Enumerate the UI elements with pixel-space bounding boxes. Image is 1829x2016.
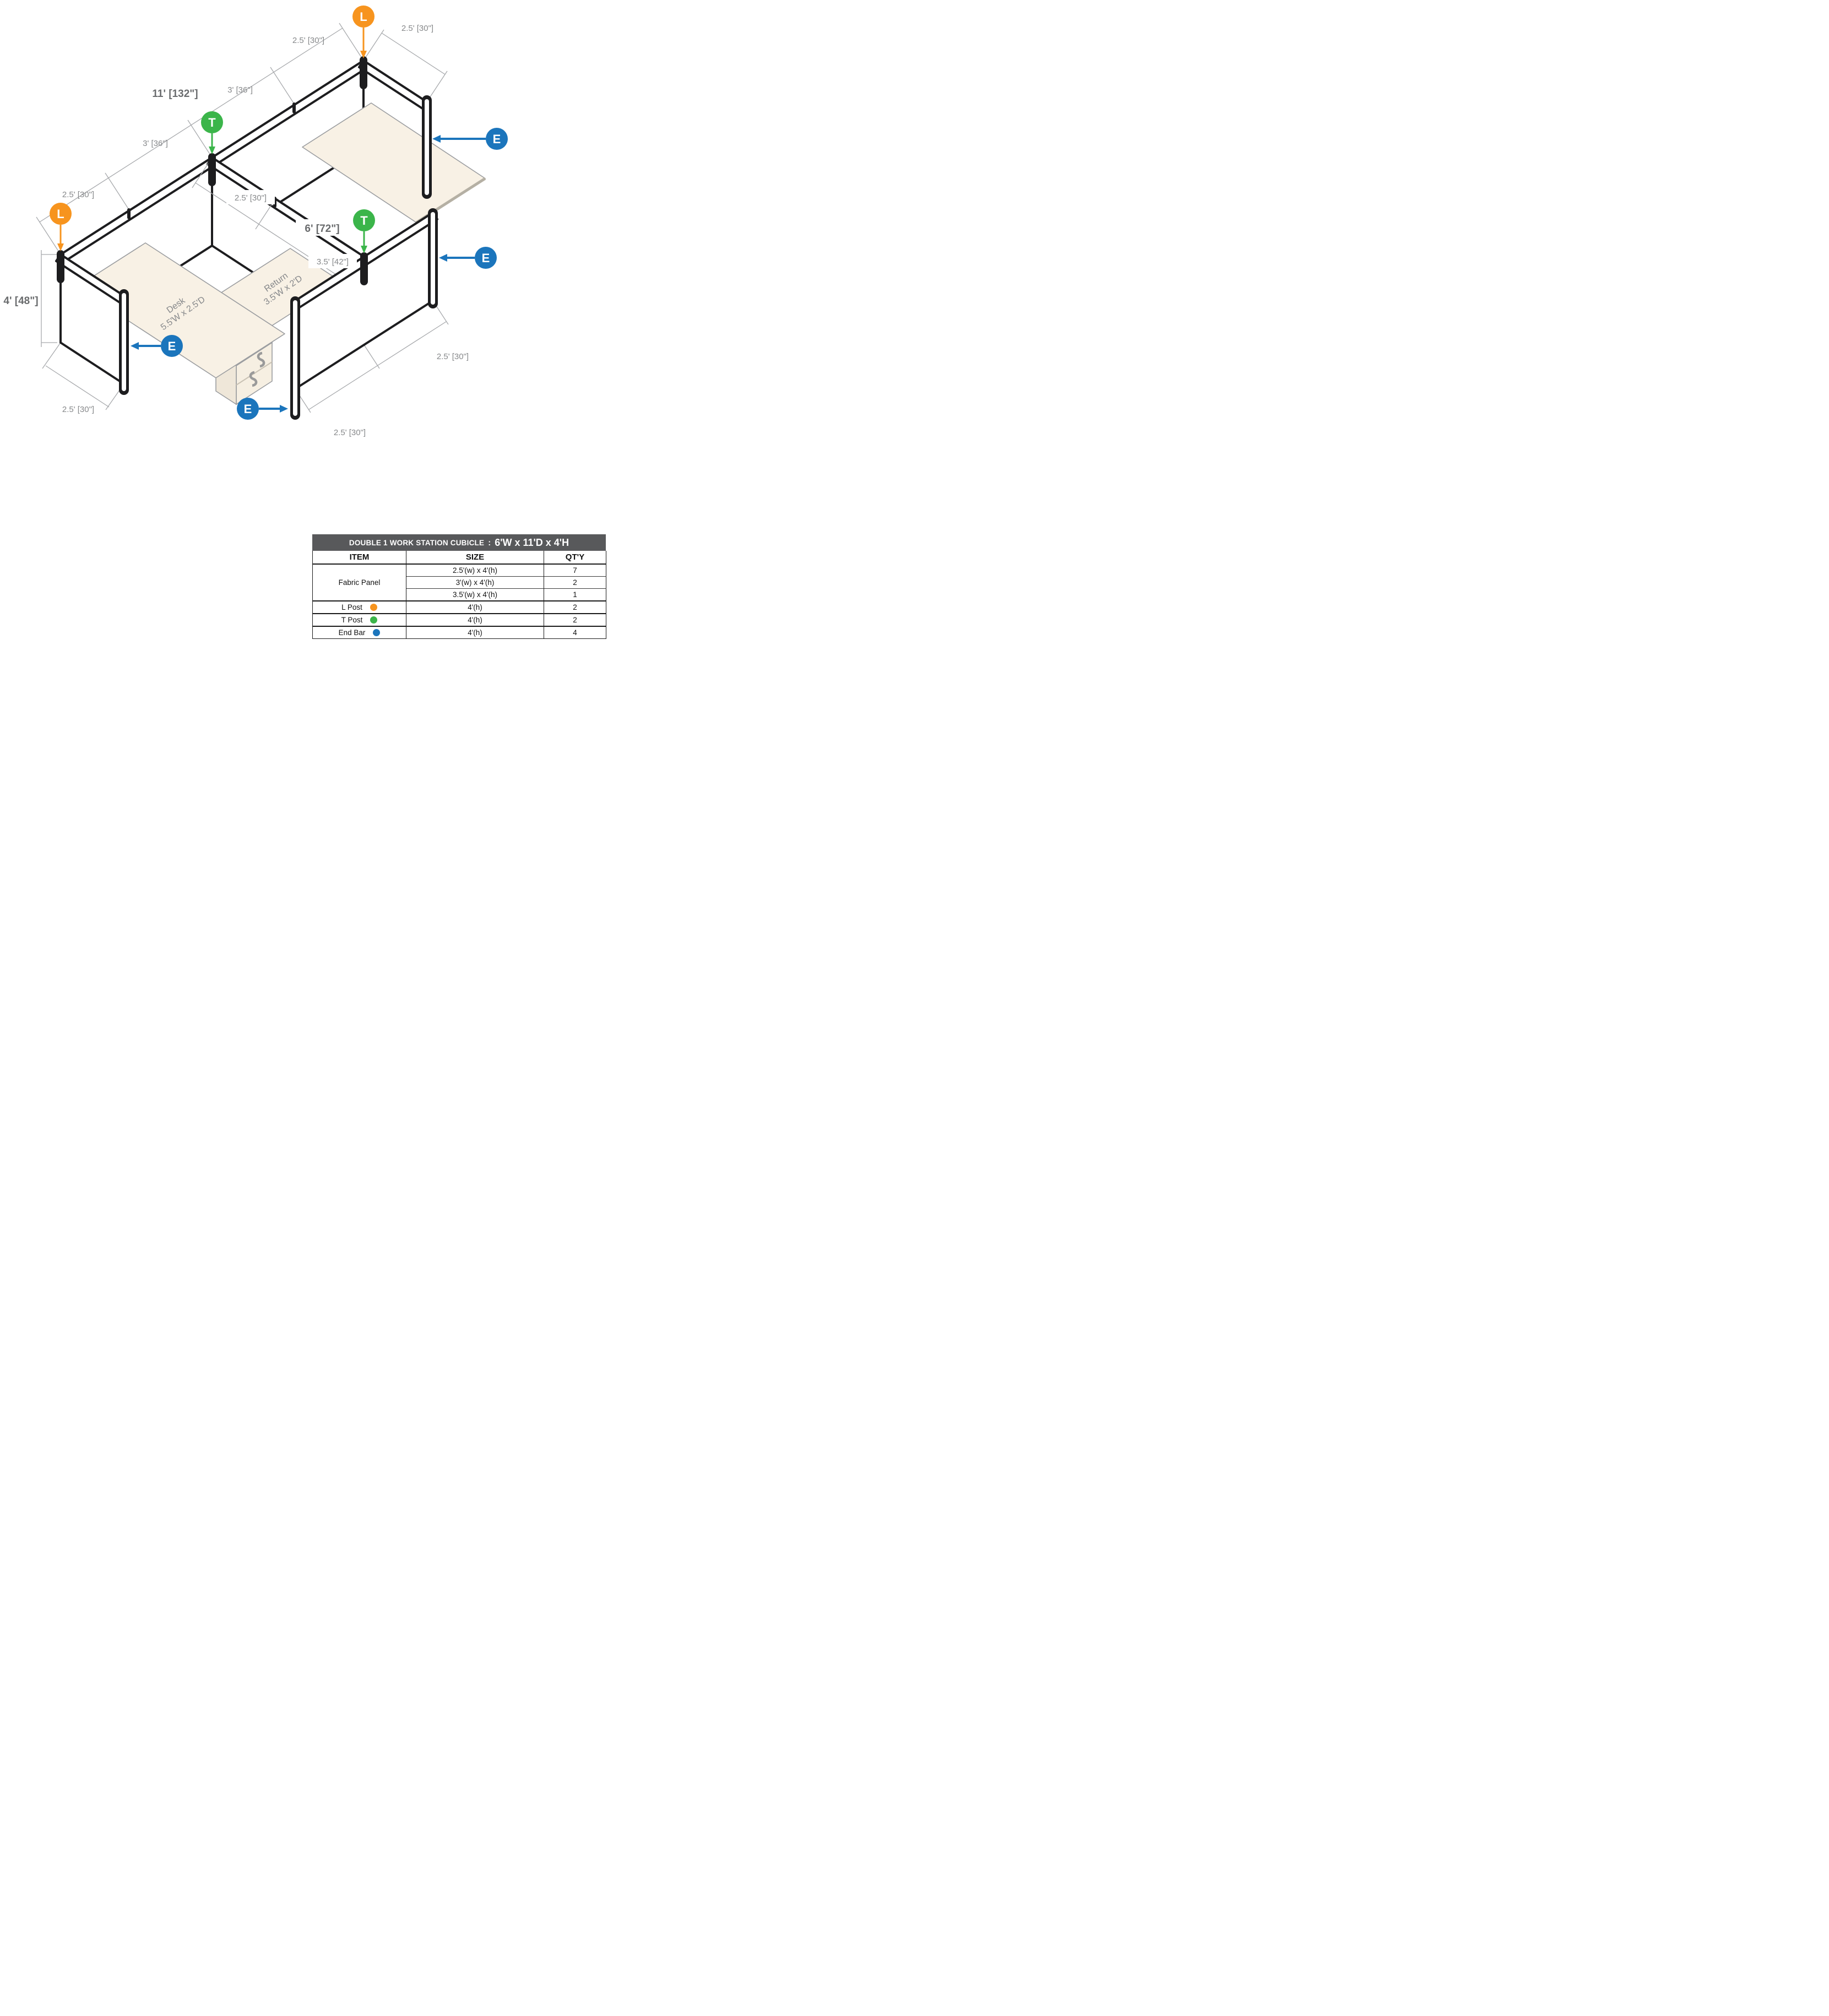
l-post-top <box>360 56 367 89</box>
end-bar-marker-bottom-center: E <box>237 398 288 420</box>
svg-text:E: E <box>168 339 176 353</box>
dim-height: 4' [48"] <box>3 295 38 307</box>
table-row-fabric-1: Fabric Panel 2.5'(w) x 4'(h) 7 <box>313 564 606 577</box>
col-header-size: SIZE <box>406 551 544 564</box>
svg-text:L: L <box>360 10 367 24</box>
t-post-marker-right: T <box>353 209 375 253</box>
qty-end-bar: 4 <box>544 626 606 639</box>
dim-spine-total: 6' [72"] <box>305 223 339 235</box>
item-t-post: T Post <box>341 616 363 624</box>
end-bar-bottom-left-inner <box>122 293 126 391</box>
size-l-post: 4'(h) <box>406 601 544 614</box>
t-post-right <box>360 252 368 285</box>
size-fabric-3: 3.5'(w) x 4'(h) <box>406 589 544 601</box>
dim-spine-seg2: 3.5' [42"] <box>317 257 349 267</box>
svg-text:T: T <box>360 214 368 227</box>
dim-left-seg2: 3' [36"] <box>227 85 253 95</box>
end-bar-dot-icon <box>373 629 380 636</box>
spec-header-row: ITEM SIZE QT'Y <box>313 551 606 564</box>
t-post-left <box>208 153 216 186</box>
dim-overall-depth: 11' [132"] <box>152 88 198 100</box>
item-l-post: L Post <box>341 603 362 611</box>
spec-table-panel: DOUBLE 1 WORK STATION CUBICLE : 6'W x 11… <box>312 534 606 639</box>
t-post-dot-icon <box>370 616 377 624</box>
dim-left-seg1: 2.5' [30"] <box>292 36 324 45</box>
col-header-item: ITEM <box>313 551 406 564</box>
dim-left-seg4: 2.5' [30"] <box>62 190 94 199</box>
spec-table: ITEM SIZE QT'Y Fabric Panel 2.5'(w) x 4'… <box>312 551 606 639</box>
dim-left-seg3: 3' [36"] <box>143 139 168 148</box>
table-row-end-bar: End Bar 4'(h) 4 <box>313 626 606 639</box>
svg-text:E: E <box>244 402 252 416</box>
spec-title-dimensions: 6'W x 11'D x 4'H <box>495 537 569 549</box>
size-fabric-2: 3'(w) x 4'(h) <box>406 577 544 589</box>
end-bar-right-lower-inner <box>293 300 297 416</box>
svg-text:T: T <box>208 116 216 129</box>
l-post-marker-top: L <box>352 6 375 58</box>
svg-text:L: L <box>57 207 64 221</box>
panel-seam <box>292 102 296 113</box>
item-fabric-panel: Fabric Panel <box>313 564 406 601</box>
cubicle-isometric-diagram: 2.5' [30"] 6' [72"] 3.5' [42"] 2.5' [30"… <box>0 0 610 562</box>
svg-text:E: E <box>482 251 490 265</box>
t-post-marker-left: T <box>201 111 223 154</box>
cubicle-structure <box>56 56 485 420</box>
spec-title: DOUBLE 1 WORK STATION CUBICLE <box>349 539 484 547</box>
end-bar-marker-top: E <box>432 128 508 150</box>
end-bar-marker-right: E <box>439 247 497 269</box>
qty-fabric-3: 1 <box>544 589 606 601</box>
dim-right-lower: 2.5' [30"] <box>334 428 366 437</box>
dim-top-wall: 2.5' [30"] <box>401 24 433 33</box>
table-row-t-post: T Post 4'(h) 2 <box>313 614 606 626</box>
qty-fabric-2: 2 <box>544 577 606 589</box>
l-post-dot-icon <box>370 604 377 611</box>
l-post-marker-bottom: L <box>50 203 72 251</box>
table-row-l-post: L Post 4'(h) 2 <box>313 601 606 614</box>
spec-table-title-bar: DOUBLE 1 WORK STATION CUBICLE : 6'W x 11… <box>312 534 606 551</box>
size-end-bar: 4'(h) <box>406 626 544 639</box>
svg-text:E: E <box>493 132 501 146</box>
col-header-qty: QT'Y <box>544 551 606 564</box>
l-post-bottom <box>57 250 64 283</box>
dim-bottom-wall: 2.5' [30"] <box>62 405 94 414</box>
item-end-bar: End Bar <box>339 628 366 637</box>
dim-right-upper: 2.5' [30"] <box>437 352 469 361</box>
spec-title-separator: : <box>488 538 491 548</box>
dim-spine-seg1: 2.5' [30"] <box>235 193 267 203</box>
qty-fabric-1: 7 <box>544 564 606 577</box>
size-fabric-1: 2.5'(w) x 4'(h) <box>406 564 544 577</box>
panel-seam <box>127 208 131 219</box>
size-t-post: 4'(h) <box>406 614 544 626</box>
end-bar-top-inner <box>425 99 429 195</box>
end-bar-right-upper-inner <box>431 212 435 305</box>
qty-l-post: 2 <box>544 601 606 614</box>
qty-t-post: 2 <box>544 614 606 626</box>
page: 2.5' [30"] 6' [72"] 3.5' [42"] 2.5' [30"… <box>0 0 610 672</box>
